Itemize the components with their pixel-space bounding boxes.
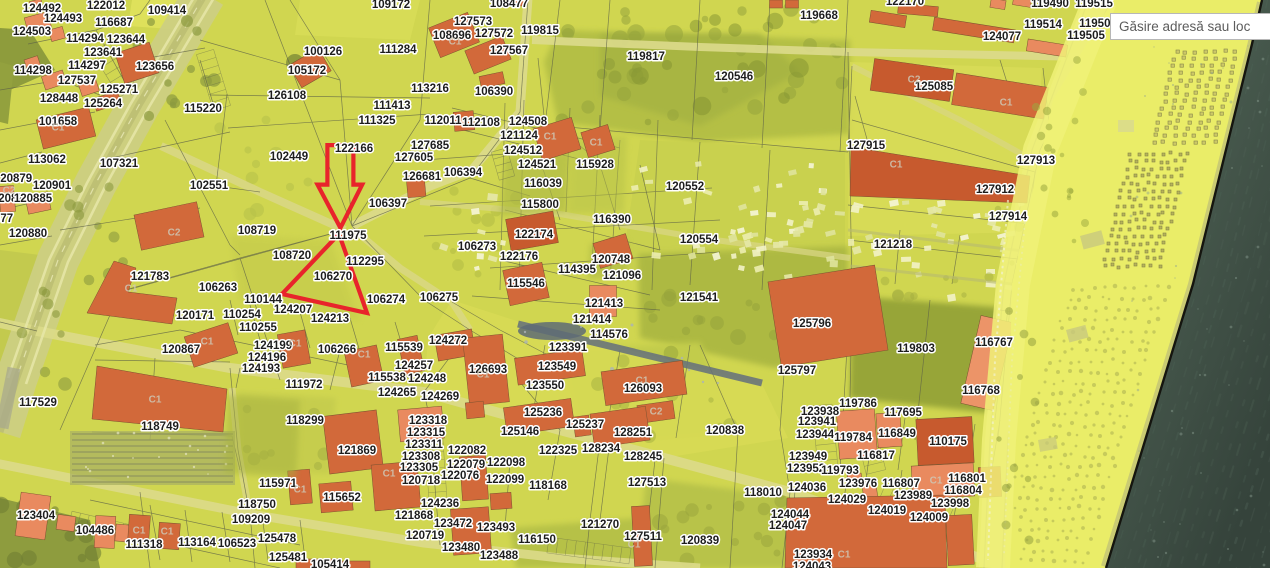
svg-text:121868: 121868 xyxy=(395,510,434,522)
svg-text:120719: 120719 xyxy=(406,530,444,542)
svg-text:123315: 123315 xyxy=(407,427,446,439)
svg-text:116768: 116768 xyxy=(962,385,1000,397)
svg-text:C2: C2 xyxy=(3,186,16,197)
svg-text:124503: 124503 xyxy=(13,26,51,38)
svg-text:125478: 125478 xyxy=(258,533,297,545)
svg-text:121096: 121096 xyxy=(603,270,641,282)
svg-text:117695: 117695 xyxy=(884,407,922,419)
svg-text:119514: 119514 xyxy=(1024,19,1062,31)
svg-text:119490: 119490 xyxy=(1031,0,1069,10)
svg-text:111284: 111284 xyxy=(379,44,417,56)
svg-text:115546: 115546 xyxy=(507,278,545,290)
svg-text:111325: 111325 xyxy=(358,115,396,127)
svg-text:125236: 125236 xyxy=(524,407,562,419)
svg-text:127685: 127685 xyxy=(411,140,450,152)
svg-text:115652: 115652 xyxy=(323,492,361,504)
svg-text:C2: C2 xyxy=(650,407,663,418)
svg-text:111318: 111318 xyxy=(125,539,163,551)
svg-text:106273: 106273 xyxy=(458,241,496,253)
svg-text:119784: 119784 xyxy=(834,432,872,444)
svg-text:124213: 124213 xyxy=(311,313,349,325)
svg-text:127605: 127605 xyxy=(395,152,434,164)
svg-text:115538: 115538 xyxy=(368,372,406,384)
svg-text:121270: 121270 xyxy=(581,519,619,531)
svg-text:124508: 124508 xyxy=(509,116,548,128)
svg-text:108477: 108477 xyxy=(490,0,528,10)
svg-text:125271: 125271 xyxy=(100,84,139,96)
svg-text:120552: 120552 xyxy=(666,181,704,193)
svg-text:118299: 118299 xyxy=(286,415,324,427)
svg-text:123391: 123391 xyxy=(549,342,588,354)
svg-text:116801: 116801 xyxy=(948,473,986,485)
svg-text:C1: C1 xyxy=(930,476,943,487)
svg-text:105414: 105414 xyxy=(311,559,350,568)
svg-text:C1: C1 xyxy=(201,337,214,348)
svg-text:120901: 120901 xyxy=(33,180,72,192)
svg-text:123311: 123311 xyxy=(405,439,443,451)
svg-text:125237: 125237 xyxy=(566,419,604,431)
svg-text:115800: 115800 xyxy=(521,199,559,211)
svg-text:124236: 124236 xyxy=(421,498,459,510)
svg-text:123976: 123976 xyxy=(839,478,877,490)
svg-text:124521: 124521 xyxy=(518,159,557,171)
svg-text:123934: 123934 xyxy=(794,549,833,561)
svg-text:118010: 118010 xyxy=(744,487,782,499)
svg-text:C1: C1 xyxy=(125,284,138,295)
svg-text:124265: 124265 xyxy=(378,387,417,399)
svg-text:125796: 125796 xyxy=(793,318,831,330)
svg-text:127912: 127912 xyxy=(976,184,1014,196)
svg-text:114297: 114297 xyxy=(68,60,106,72)
svg-text:116150: 116150 xyxy=(518,534,556,546)
svg-text:117529: 117529 xyxy=(19,397,57,409)
svg-text:122325: 122325 xyxy=(539,445,578,457)
svg-text:120877: 120877 xyxy=(0,213,13,225)
svg-text:126681: 126681 xyxy=(403,171,442,183)
svg-text:112108: 112108 xyxy=(462,117,500,129)
svg-text:C2: C2 xyxy=(908,75,921,86)
svg-text:123656: 123656 xyxy=(136,61,174,73)
svg-text:110175: 110175 xyxy=(929,436,967,448)
svg-text:124009: 124009 xyxy=(910,512,948,524)
svg-text:121869: 121869 xyxy=(338,445,376,457)
svg-text:125264: 125264 xyxy=(84,98,123,110)
svg-text:119793: 119793 xyxy=(821,465,859,477)
svg-text:124036: 124036 xyxy=(788,482,826,494)
svg-text:100126: 100126 xyxy=(304,46,342,58)
svg-text:C1: C1 xyxy=(161,527,174,538)
svg-text:123318: 123318 xyxy=(409,415,448,427)
svg-text:C1: C1 xyxy=(636,376,649,387)
svg-text:125797: 125797 xyxy=(778,365,816,377)
svg-text:115928: 115928 xyxy=(576,159,614,171)
svg-text:112295: 112295 xyxy=(346,256,384,268)
svg-text:113164: 113164 xyxy=(178,537,216,549)
svg-text:127914: 127914 xyxy=(989,211,1028,223)
svg-text:120718: 120718 xyxy=(402,475,441,487)
svg-text:107321: 107321 xyxy=(100,158,139,170)
svg-text:104486: 104486 xyxy=(76,525,114,537)
svg-text:C2: C2 xyxy=(168,228,181,239)
svg-text:120867: 120867 xyxy=(162,344,200,356)
svg-text:C1: C1 xyxy=(477,370,490,381)
svg-text:122176: 122176 xyxy=(500,251,538,263)
svg-text:123493: 123493 xyxy=(477,522,515,534)
svg-text:118749: 118749 xyxy=(141,421,179,433)
svg-text:105172: 105172 xyxy=(288,65,326,77)
svg-text:123989: 123989 xyxy=(894,490,932,502)
svg-text:C1: C1 xyxy=(838,550,851,561)
svg-text:124512: 124512 xyxy=(504,145,542,157)
svg-text:126108: 126108 xyxy=(268,90,307,102)
svg-text:111972: 111972 xyxy=(285,379,322,391)
svg-text:124193: 124193 xyxy=(242,363,280,375)
svg-text:106275: 106275 xyxy=(420,292,459,304)
svg-text:119505: 119505 xyxy=(1067,30,1105,42)
svg-text:123305: 123305 xyxy=(400,462,439,474)
svg-text:110254: 110254 xyxy=(223,309,261,321)
svg-text:127537: 127537 xyxy=(58,75,96,87)
svg-text:C1: C1 xyxy=(358,350,371,361)
svg-text:106266: 106266 xyxy=(318,344,356,356)
svg-text:124257: 124257 xyxy=(395,360,433,372)
svg-text:124047: 124047 xyxy=(769,520,807,532)
svg-text:121413: 121413 xyxy=(585,298,623,310)
svg-text:120171: 120171 xyxy=(176,310,215,322)
svg-text:C1: C1 xyxy=(149,395,162,406)
svg-text:C1: C1 xyxy=(1000,98,1013,109)
svg-text:C1: C1 xyxy=(590,138,603,149)
svg-text:118168: 118168 xyxy=(529,480,567,492)
svg-text:115220: 115220 xyxy=(184,103,222,115)
svg-text:122098: 122098 xyxy=(487,457,526,469)
svg-text:106274: 106274 xyxy=(367,294,406,306)
svg-text:106523: 106523 xyxy=(218,538,256,550)
svg-text:127513: 127513 xyxy=(628,477,666,489)
svg-text:116687: 116687 xyxy=(95,17,133,29)
svg-text:109172: 109172 xyxy=(372,0,410,11)
svg-text:122166: 122166 xyxy=(335,143,373,155)
svg-text:120546: 120546 xyxy=(715,71,753,83)
svg-text:124029: 124029 xyxy=(828,494,866,506)
svg-text:111975: 111975 xyxy=(329,230,367,242)
svg-text:124207: 124207 xyxy=(274,304,312,316)
svg-text:127913: 127913 xyxy=(1017,155,1055,167)
svg-text:123641: 123641 xyxy=(84,47,123,59)
svg-text:120838: 120838 xyxy=(706,425,745,437)
svg-text:114576: 114576 xyxy=(590,329,628,341)
svg-text:127915: 127915 xyxy=(847,140,886,152)
svg-text:114395: 114395 xyxy=(558,264,596,276)
svg-text:106397: 106397 xyxy=(369,198,407,210)
svg-text:121124: 121124 xyxy=(500,130,538,142)
svg-text:116767: 116767 xyxy=(975,337,1013,349)
svg-text:109414: 109414 xyxy=(148,5,187,17)
svg-text:123644: 123644 xyxy=(107,34,146,46)
svg-text:119815: 119815 xyxy=(521,25,559,37)
svg-text:118750: 118750 xyxy=(238,499,276,511)
svg-text:C1: C1 xyxy=(890,160,903,171)
svg-text:C1: C1 xyxy=(133,526,146,537)
svg-text:122082: 122082 xyxy=(448,445,486,457)
svg-text:124272: 124272 xyxy=(429,335,467,347)
svg-text:106394: 106394 xyxy=(444,167,483,179)
svg-text:114298: 114298 xyxy=(14,65,52,77)
svg-text:102449: 102449 xyxy=(270,151,308,163)
svg-text:123998: 123998 xyxy=(931,498,970,510)
svg-text:124269: 124269 xyxy=(421,391,459,403)
svg-text:124199: 124199 xyxy=(254,340,292,352)
svg-text:123472: 123472 xyxy=(434,518,472,530)
svg-text:124077: 124077 xyxy=(983,31,1021,43)
svg-text:116817: 116817 xyxy=(857,450,895,462)
svg-text:122174: 122174 xyxy=(515,229,554,241)
svg-text:123944: 123944 xyxy=(796,429,835,441)
svg-text:108720: 108720 xyxy=(273,250,311,262)
svg-text:123941: 123941 xyxy=(798,416,837,428)
svg-text:116039: 116039 xyxy=(524,178,562,190)
svg-text:119668: 119668 xyxy=(800,10,838,22)
svg-text:115971: 115971 xyxy=(259,478,297,490)
svg-text:106270: 106270 xyxy=(314,271,352,283)
svg-text:123550: 123550 xyxy=(526,380,564,392)
svg-text:123404: 123404 xyxy=(17,510,56,522)
svg-text:124043: 124043 xyxy=(793,561,831,568)
svg-text:128234: 128234 xyxy=(582,443,621,455)
svg-text:122076: 122076 xyxy=(441,470,479,482)
svg-text:C1: C1 xyxy=(544,132,557,143)
svg-text:112011: 112011 xyxy=(424,115,462,127)
svg-text:119515: 119515 xyxy=(1075,0,1113,10)
svg-text:125481: 125481 xyxy=(269,552,308,564)
svg-text:108719: 108719 xyxy=(238,225,276,237)
svg-text:127572: 127572 xyxy=(475,28,513,40)
svg-text:115539: 115539 xyxy=(385,342,423,354)
svg-text:110255: 110255 xyxy=(239,322,277,334)
svg-text:127567: 127567 xyxy=(490,45,528,57)
svg-text:102551: 102551 xyxy=(190,180,229,192)
svg-text:124019: 124019 xyxy=(868,505,906,517)
svg-text:123949: 123949 xyxy=(789,451,827,463)
svg-text:120554: 120554 xyxy=(680,234,719,246)
svg-text:C1: C1 xyxy=(289,339,302,350)
svg-text:121541: 121541 xyxy=(680,292,719,304)
svg-text:113062: 113062 xyxy=(28,154,66,166)
svg-text:119817: 119817 xyxy=(627,51,665,63)
svg-text:C1: C1 xyxy=(52,123,65,134)
svg-text:120839: 120839 xyxy=(681,535,719,547)
svg-text:125146: 125146 xyxy=(501,426,539,438)
svg-text:116849: 116849 xyxy=(878,428,916,440)
svg-text:106263: 106263 xyxy=(199,282,237,294)
svg-text:120885: 120885 xyxy=(14,193,53,205)
svg-text:114294: 114294 xyxy=(66,33,104,45)
svg-text:123480: 123480 xyxy=(442,542,480,554)
svg-text:116390: 116390 xyxy=(593,214,631,226)
svg-text:109209: 109209 xyxy=(232,514,270,526)
svg-text:128448: 128448 xyxy=(40,93,79,105)
svg-text:C1: C1 xyxy=(449,37,462,48)
svg-text:128251: 128251 xyxy=(614,427,653,439)
svg-text:124493: 124493 xyxy=(44,13,82,25)
svg-text:121414: 121414 xyxy=(573,314,612,326)
svg-text:C1: C1 xyxy=(383,469,396,480)
svg-text:123488: 123488 xyxy=(480,550,519,562)
svg-text:123952: 123952 xyxy=(787,463,825,475)
svg-text:125085: 125085 xyxy=(915,81,954,93)
svg-text:106390: 106390 xyxy=(475,86,513,98)
svg-text:120748: 120748 xyxy=(592,254,631,266)
svg-text:120880: 120880 xyxy=(9,228,47,240)
svg-text:127573: 127573 xyxy=(454,16,492,28)
svg-text:123549: 123549 xyxy=(538,361,576,373)
svg-text:119786: 119786 xyxy=(839,398,877,410)
svg-text:122170: 122170 xyxy=(886,0,924,8)
svg-text:122012: 122012 xyxy=(87,0,125,12)
svg-text:111413: 111413 xyxy=(373,100,410,112)
svg-text:C1: C1 xyxy=(628,540,641,551)
svg-text:120879: 120879 xyxy=(0,173,32,185)
svg-text:113216: 113216 xyxy=(411,83,449,95)
svg-text:124248: 124248 xyxy=(408,373,447,385)
svg-text:128245: 128245 xyxy=(624,451,663,463)
svg-text:116807: 116807 xyxy=(882,478,920,490)
svg-text:119803: 119803 xyxy=(897,343,935,355)
svg-text:116804: 116804 xyxy=(944,485,982,497)
svg-text:121783: 121783 xyxy=(131,271,169,283)
svg-text:122099: 122099 xyxy=(486,474,524,486)
svg-text:121218: 121218 xyxy=(874,239,913,251)
svg-text:C1: C1 xyxy=(294,485,307,496)
